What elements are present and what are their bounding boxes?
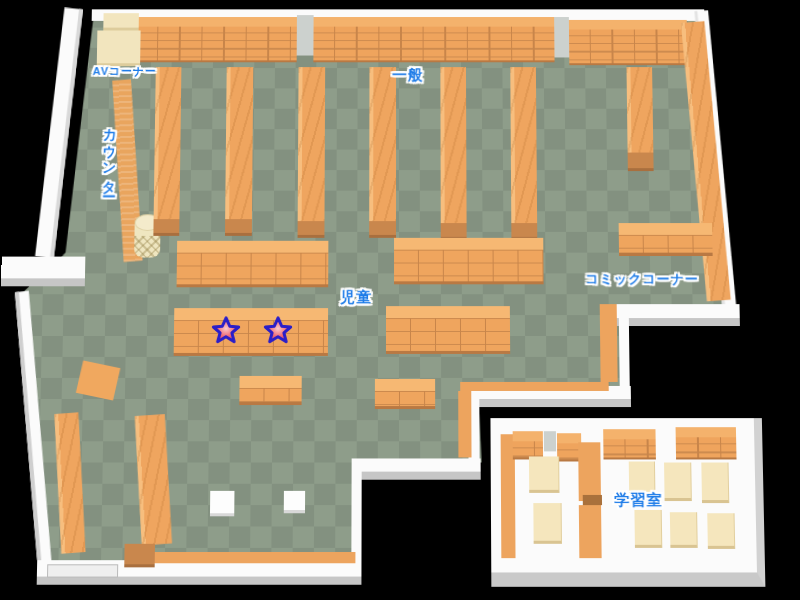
study-desk [210,491,235,516]
study-room-table [670,512,698,548]
entrance-porch-wall [1,257,85,287]
bookshelf-row [225,67,253,219]
study-room-shelf [603,429,656,459]
floor-map-scene: AVコーナー 一般 カウンター 児童 コミックコーナー 学習室 [0,7,800,600]
label-av-corner: AVコーナー [93,64,157,78]
children-bookshelf [177,241,329,287]
comic-corner-bottom-wall [617,304,740,326]
study-room-shelf [513,431,543,459]
study-room-table [707,513,735,549]
study-room-table [529,456,560,492]
wall-bookshelf-band [313,17,554,62]
study-room-table [533,503,562,544]
star-marker[interactable] [211,315,241,345]
bottom-wall-bookshelf [155,552,356,563]
bookshelf-endcap [124,544,155,568]
study-room-divider [578,442,601,501]
study-room-divider-gap [583,495,602,505]
bookshelf-row [154,67,182,219]
label-counter: カウンター [100,118,119,190]
bookshelf-endcap [298,221,325,238]
right-wall-mid [619,304,630,390]
wall-bookshelf-band [569,20,688,65]
label-general: 一般 [392,66,424,84]
wall-bookshelf-band [136,17,297,62]
floor-map-stage: AVコーナー 一般 カウンター 児童 コミックコーナー 学習室 [0,0,800,600]
low-bookshelf [375,379,435,409]
wall-bookshelf [460,382,609,391]
label-comic-corner: コミックコーナー [585,270,699,288]
step-wall-lower [352,458,481,479]
bookshelf-endcap [153,219,179,236]
study-room-pillar [544,431,556,451]
bookshelf-endcap [225,219,252,236]
study-room-table [664,463,692,502]
bookshelf-row [369,67,396,221]
bookshelf-row [626,67,653,152]
bookshelf-endcap [369,221,396,238]
label-study-room: 学習室 [614,491,663,510]
low-bookshelf [239,376,301,405]
av-corner-counter [97,30,141,66]
star-marker[interactable] [263,315,293,345]
children-bookshelf [386,306,510,354]
children-bookshelf [394,238,544,284]
bookshelf-row [510,67,537,223]
study-room-table [701,463,729,504]
wall-bookshelf [458,391,471,457]
wall-pillar [297,15,314,55]
bookshelf-endcap [628,153,654,172]
bookshelf-row [440,67,466,223]
study-desk [284,491,305,513]
study-room-shelf [676,427,737,459]
children-bookshelf [174,308,328,356]
comic-corner-bookshelf [619,223,713,256]
av-corner-counter [103,13,139,30]
wall-bookshelf [600,304,618,382]
label-children: 児童 [340,288,372,307]
study-room-divider [579,505,602,558]
study-room-table [634,510,662,548]
bookshelf-row [298,67,326,221]
wall-pillar [554,17,569,57]
entrance-door [47,564,118,577]
